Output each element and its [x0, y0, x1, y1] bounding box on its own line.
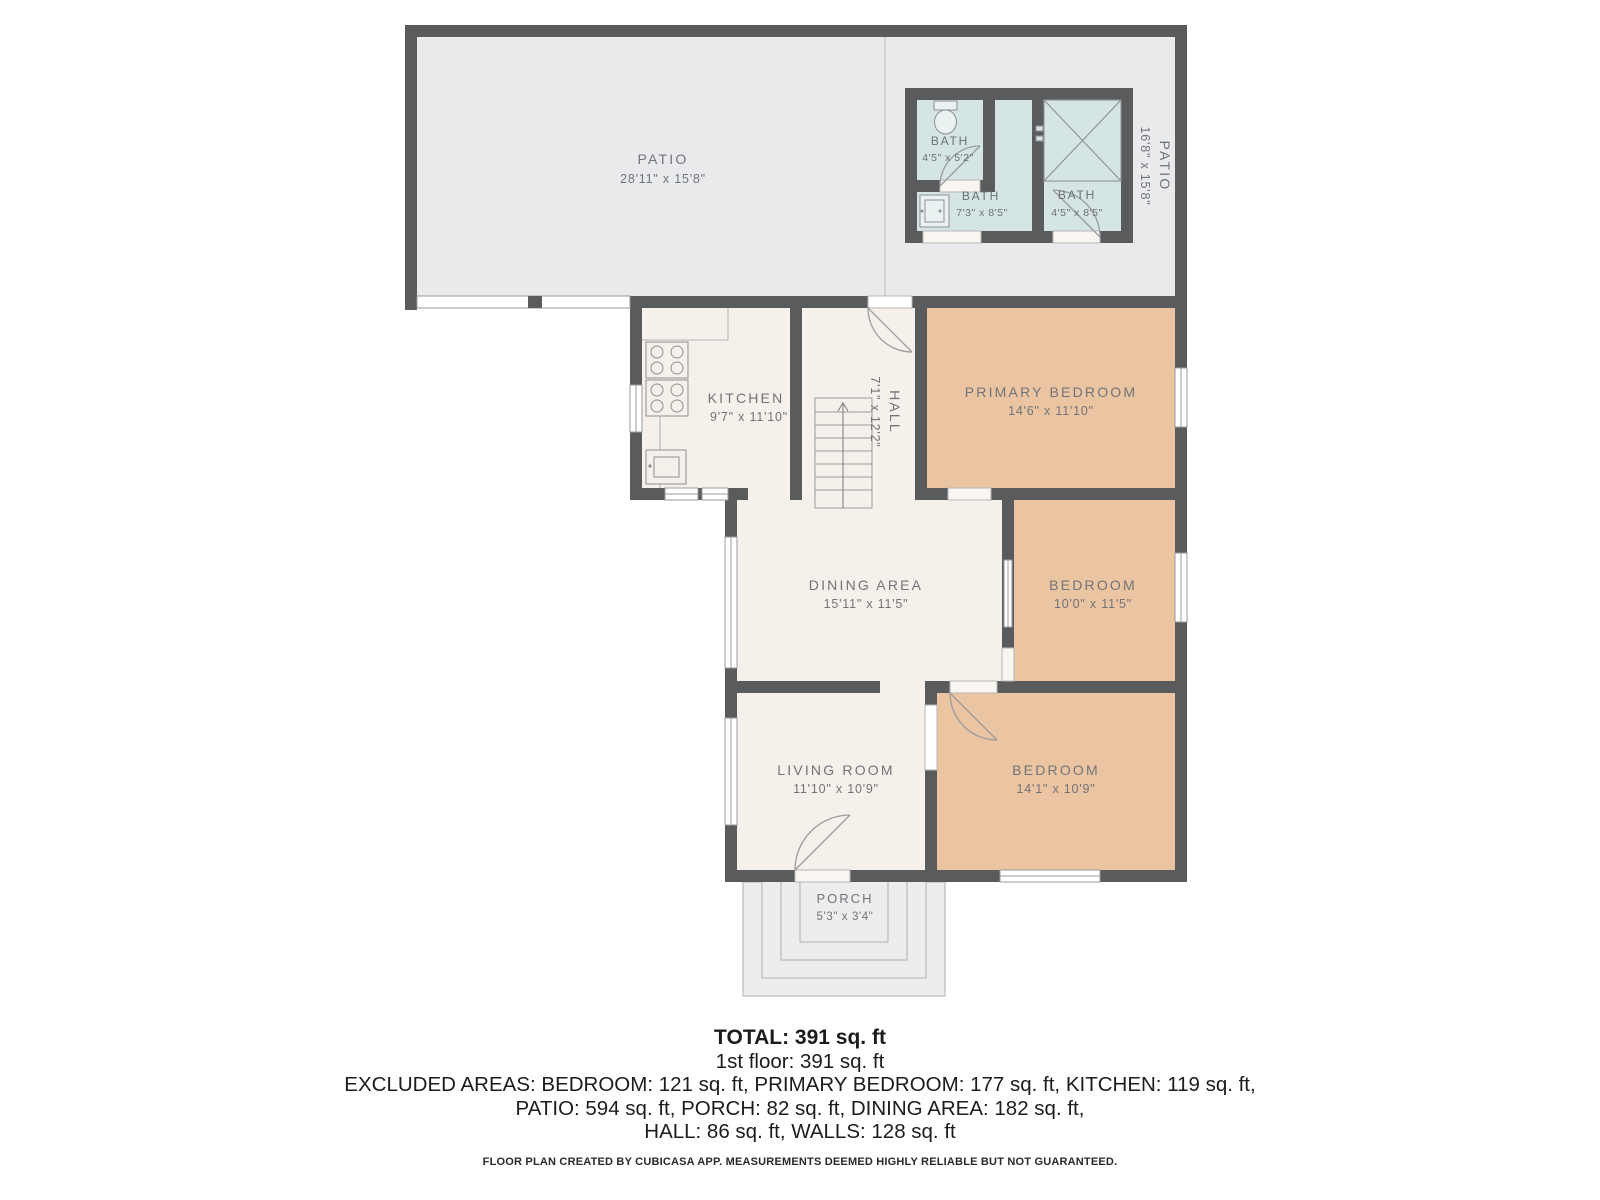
- window: [725, 718, 737, 825]
- kitchen-sink-icon: [646, 450, 686, 484]
- primary-bedroom-name: PRIMARY BEDROOM: [965, 384, 1138, 400]
- hall-dims: 7'1" x 12'2": [868, 376, 882, 447]
- floor-plan-page: PATIO 28'11" x 15'8" PATIO 16'8" x 15'8"…: [0, 0, 1600, 1200]
- patio-main-name: PATIO: [638, 151, 689, 167]
- bath-right-door-threshold: [1053, 231, 1100, 243]
- kitchen-dims: 9'7" x 11'10": [710, 410, 788, 424]
- bedroom-mid-dims: 10'0" x 11'5": [1054, 597, 1132, 611]
- porch-dims: 5'3" x 3'4": [817, 911, 874, 923]
- patio-side-dims: 16'8" x 15'8": [1138, 127, 1152, 206]
- kitchen-dining-opening: [748, 488, 790, 500]
- bath-mid-door-threshold: [923, 231, 981, 243]
- hall-door-threshold: [868, 296, 912, 308]
- window: [1000, 870, 1100, 882]
- primary-bedroom-door-threshold: [948, 488, 991, 500]
- patio-railing: [417, 296, 630, 308]
- window: [702, 488, 728, 500]
- bedroom-bottom-name: BEDROOM: [1012, 762, 1100, 778]
- floor-plan-drawing: PATIO 28'11" x 15'8" PATIO 16'8" x 15'8"…: [0, 0, 1600, 1010]
- excluded-areas-line1: EXCLUDED AREAS: BEDROOM: 121 sq. ft, PRI…: [0, 1073, 1600, 1097]
- bathroom-sink-icon: [920, 195, 949, 227]
- porch-name: PORCH: [817, 891, 874, 906]
- bath-mid-dims: 7'3" x 8'5": [956, 207, 1007, 219]
- patio-side-name: PATIO: [1157, 141, 1173, 192]
- patio-main-dims: 28'11" x 15'8": [620, 172, 706, 186]
- window: [630, 385, 642, 432]
- bedroom-bottom-door-threshold: [950, 681, 997, 693]
- hall-name: HALL: [887, 390, 903, 434]
- railing-post: [528, 296, 542, 308]
- bedroom-mid-door-threshold: [1002, 648, 1014, 681]
- window: [725, 537, 737, 668]
- bedroom-bottom-dims: 14'1" x 10'9": [1017, 782, 1096, 796]
- bath-right-name: BATH: [1058, 188, 1096, 202]
- bedroom-mid-name: BEDROOM: [1049, 577, 1137, 593]
- primary-bedroom-dims: 14'6" x 11'10": [1008, 404, 1094, 418]
- window: [665, 488, 698, 500]
- living-dims: 11'10" x 10'9": [793, 782, 879, 796]
- living-bedroom-opening: [925, 705, 937, 770]
- window: [1175, 553, 1187, 622]
- excluded-areas-line2: PATIO: 594 sq. ft, PORCH: 82 sq. ft, DIN…: [0, 1097, 1600, 1121]
- bath-mid-name: BATH: [962, 189, 1000, 203]
- window: [1004, 560, 1012, 627]
- disclaimer-footer: FLOOR PLAN CREATED BY CUBICASA APP. MEAS…: [0, 1156, 1600, 1168]
- dining-dims: 15'11" x 11'5": [824, 597, 909, 611]
- floor-area: 1st floor: 391 sq. ft: [0, 1050, 1600, 1074]
- kitchen-name: KITCHEN: [708, 390, 785, 406]
- total-area: TOTAL: 391 sq. ft: [0, 1026, 1600, 1050]
- dining-name: DINING AREA: [809, 577, 923, 593]
- bath-top-name: BATH: [931, 134, 969, 148]
- bath-right-dims: 4'5" x 8'5": [1051, 207, 1102, 219]
- stairs: [815, 398, 872, 508]
- living-name: LIVING ROOM: [777, 762, 895, 778]
- window: [1175, 368, 1187, 427]
- bath-top-dims: 4'5" x 5'2": [922, 152, 973, 164]
- living-door-threshold: [795, 870, 850, 882]
- area-summary: TOTAL: 391 sq. ft 1st floor: 391 sq. ft …: [0, 1026, 1600, 1144]
- toilet-icon: [934, 101, 957, 134]
- excluded-areas-line3: HALL: 86 sq. ft, WALLS: 128 sq. ft: [0, 1120, 1600, 1144]
